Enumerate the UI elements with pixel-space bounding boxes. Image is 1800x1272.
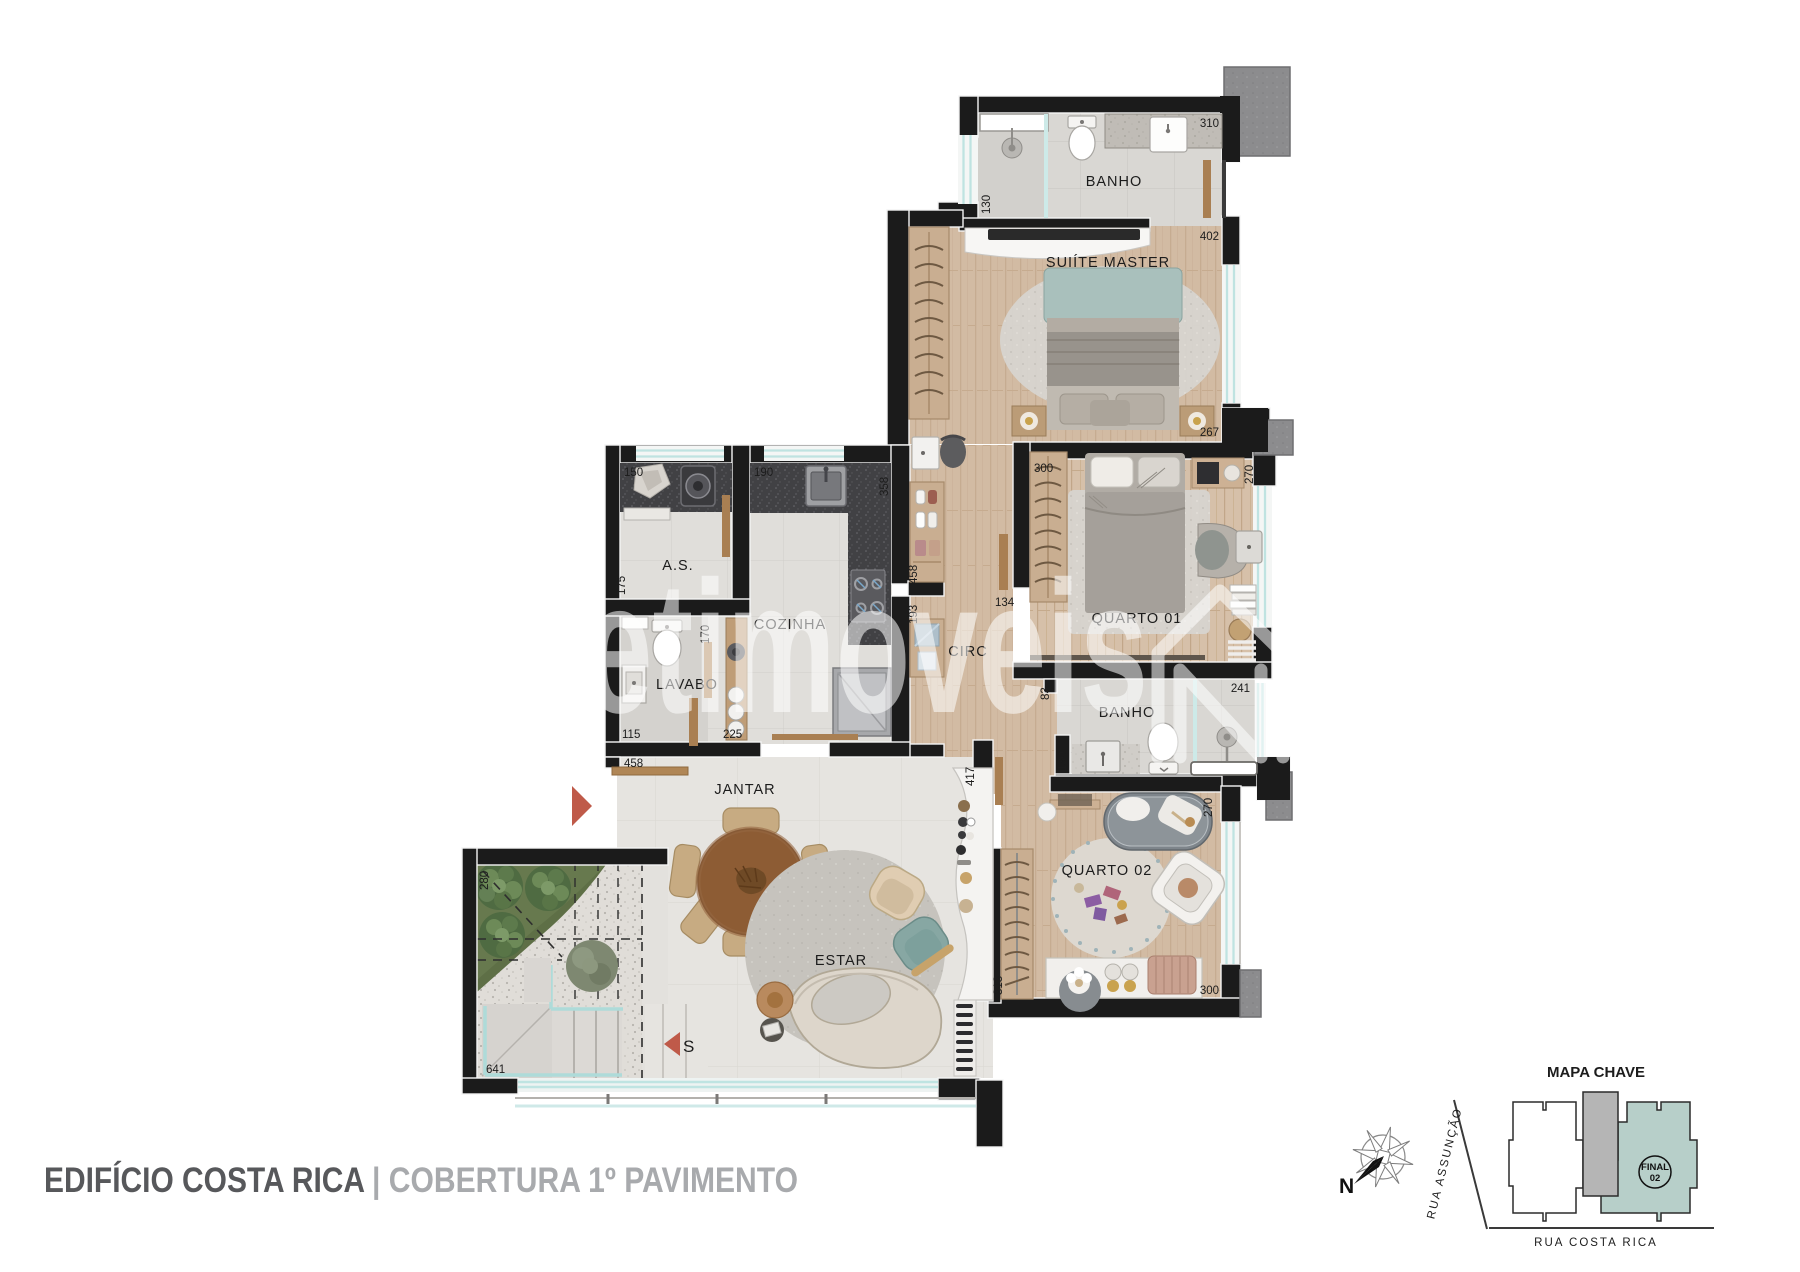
svg-text:270: 270 — [1203, 798, 1215, 817]
svg-text:270: 270 — [1244, 465, 1256, 484]
svg-text:netimoveis: netimoveis — [510, 542, 1148, 752]
svg-text:458: 458 — [624, 758, 643, 770]
svg-text:SUIÍTE MASTER: SUIÍTE MASTER — [1046, 254, 1170, 271]
svg-text:BANHO: BANHO — [1086, 174, 1143, 190]
svg-text:267: 267 — [1200, 427, 1219, 439]
svg-text:641: 641 — [486, 1064, 505, 1076]
svg-text:300: 300 — [1200, 985, 1219, 997]
svg-text:130: 130 — [1057, 752, 1069, 771]
svg-text:EDIFÍCIO COSTA RICA: EDIFÍCIO COSTA RICA — [44, 1160, 365, 1200]
svg-text:RUA COSTA RICA: RUA COSTA RICA — [1534, 1237, 1658, 1249]
svg-text:S: S — [683, 1037, 694, 1056]
svg-text:| COBERTURA 1º PAVIMENTO: | COBERTURA 1º PAVIMENTO — [372, 1161, 798, 1200]
svg-text:310: 310 — [1200, 118, 1219, 130]
svg-text:02: 02 — [1650, 1173, 1661, 1184]
svg-text:402: 402 — [1200, 231, 1219, 243]
svg-text:358: 358 — [879, 477, 891, 496]
svg-text:130: 130 — [981, 195, 993, 214]
svg-text:QUARTO 02: QUARTO 02 — [1062, 863, 1153, 879]
svg-text:280: 280 — [479, 871, 491, 890]
svg-text:MAPA CHAVE: MAPA CHAVE — [1547, 1064, 1645, 1081]
svg-text:FINAL: FINAL — [1641, 1162, 1669, 1173]
svg-text:241: 241 — [1231, 683, 1250, 695]
svg-text:417: 417 — [965, 767, 977, 786]
svg-text:JANTAR: JANTAR — [714, 782, 775, 798]
svg-text:N: N — [1339, 1175, 1354, 1198]
svg-text:190: 190 — [754, 467, 773, 479]
svg-text:300: 300 — [1034, 463, 1053, 475]
svg-text:313: 313 — [993, 976, 1005, 995]
svg-text:150: 150 — [624, 467, 643, 479]
svg-text:ESTAR: ESTAR — [815, 953, 867, 969]
